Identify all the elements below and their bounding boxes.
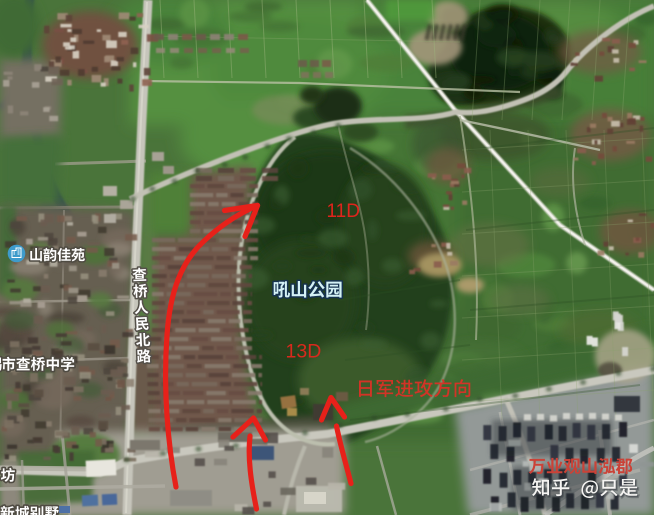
svg-text:11D: 11D — [327, 201, 360, 222]
svg-text:13D: 13D — [286, 341, 322, 363]
